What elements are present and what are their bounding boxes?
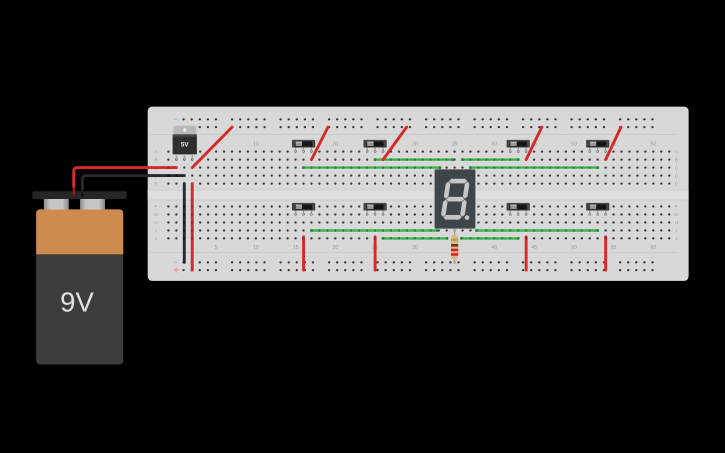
svg-text:H: H: [154, 220, 158, 226]
svg-text:H: H: [675, 220, 679, 226]
svg-text:E: E: [154, 181, 157, 187]
svg-text:30: 30: [412, 142, 418, 148]
svg-text:30: 30: [412, 245, 418, 251]
svg-text:B: B: [675, 157, 678, 163]
svg-text:35: 35: [452, 142, 458, 148]
svg-text:60: 60: [650, 142, 656, 148]
svg-text:G: G: [154, 212, 158, 218]
svg-text:5: 5: [215, 245, 218, 251]
svg-text:15: 15: [293, 245, 299, 251]
svg-text:5V: 5V: [181, 142, 189, 149]
svg-text:40: 40: [491, 245, 497, 251]
svg-text:50: 50: [571, 142, 577, 148]
svg-text:C: C: [675, 165, 679, 171]
svg-text:40: 40: [491, 142, 497, 148]
svg-text:G: G: [674, 212, 678, 218]
svg-text:45: 45: [531, 245, 537, 251]
svg-text:20: 20: [332, 142, 338, 148]
svg-text:B: B: [154, 157, 157, 163]
svg-text:10: 10: [253, 245, 259, 251]
svg-text:20: 20: [332, 245, 338, 251]
svg-text:9V: 9V: [60, 287, 94, 318]
svg-text:E: E: [675, 181, 678, 187]
svg-text:50: 50: [571, 245, 577, 251]
svg-text:F: F: [155, 204, 158, 210]
svg-text:I: I: [676, 228, 677, 234]
svg-text:60: 60: [650, 245, 656, 251]
svg-text:I: I: [155, 228, 156, 234]
svg-text:55: 55: [611, 245, 617, 251]
svg-text:F: F: [675, 204, 678, 210]
svg-text:10: 10: [253, 142, 259, 148]
svg-text:D: D: [675, 173, 679, 179]
